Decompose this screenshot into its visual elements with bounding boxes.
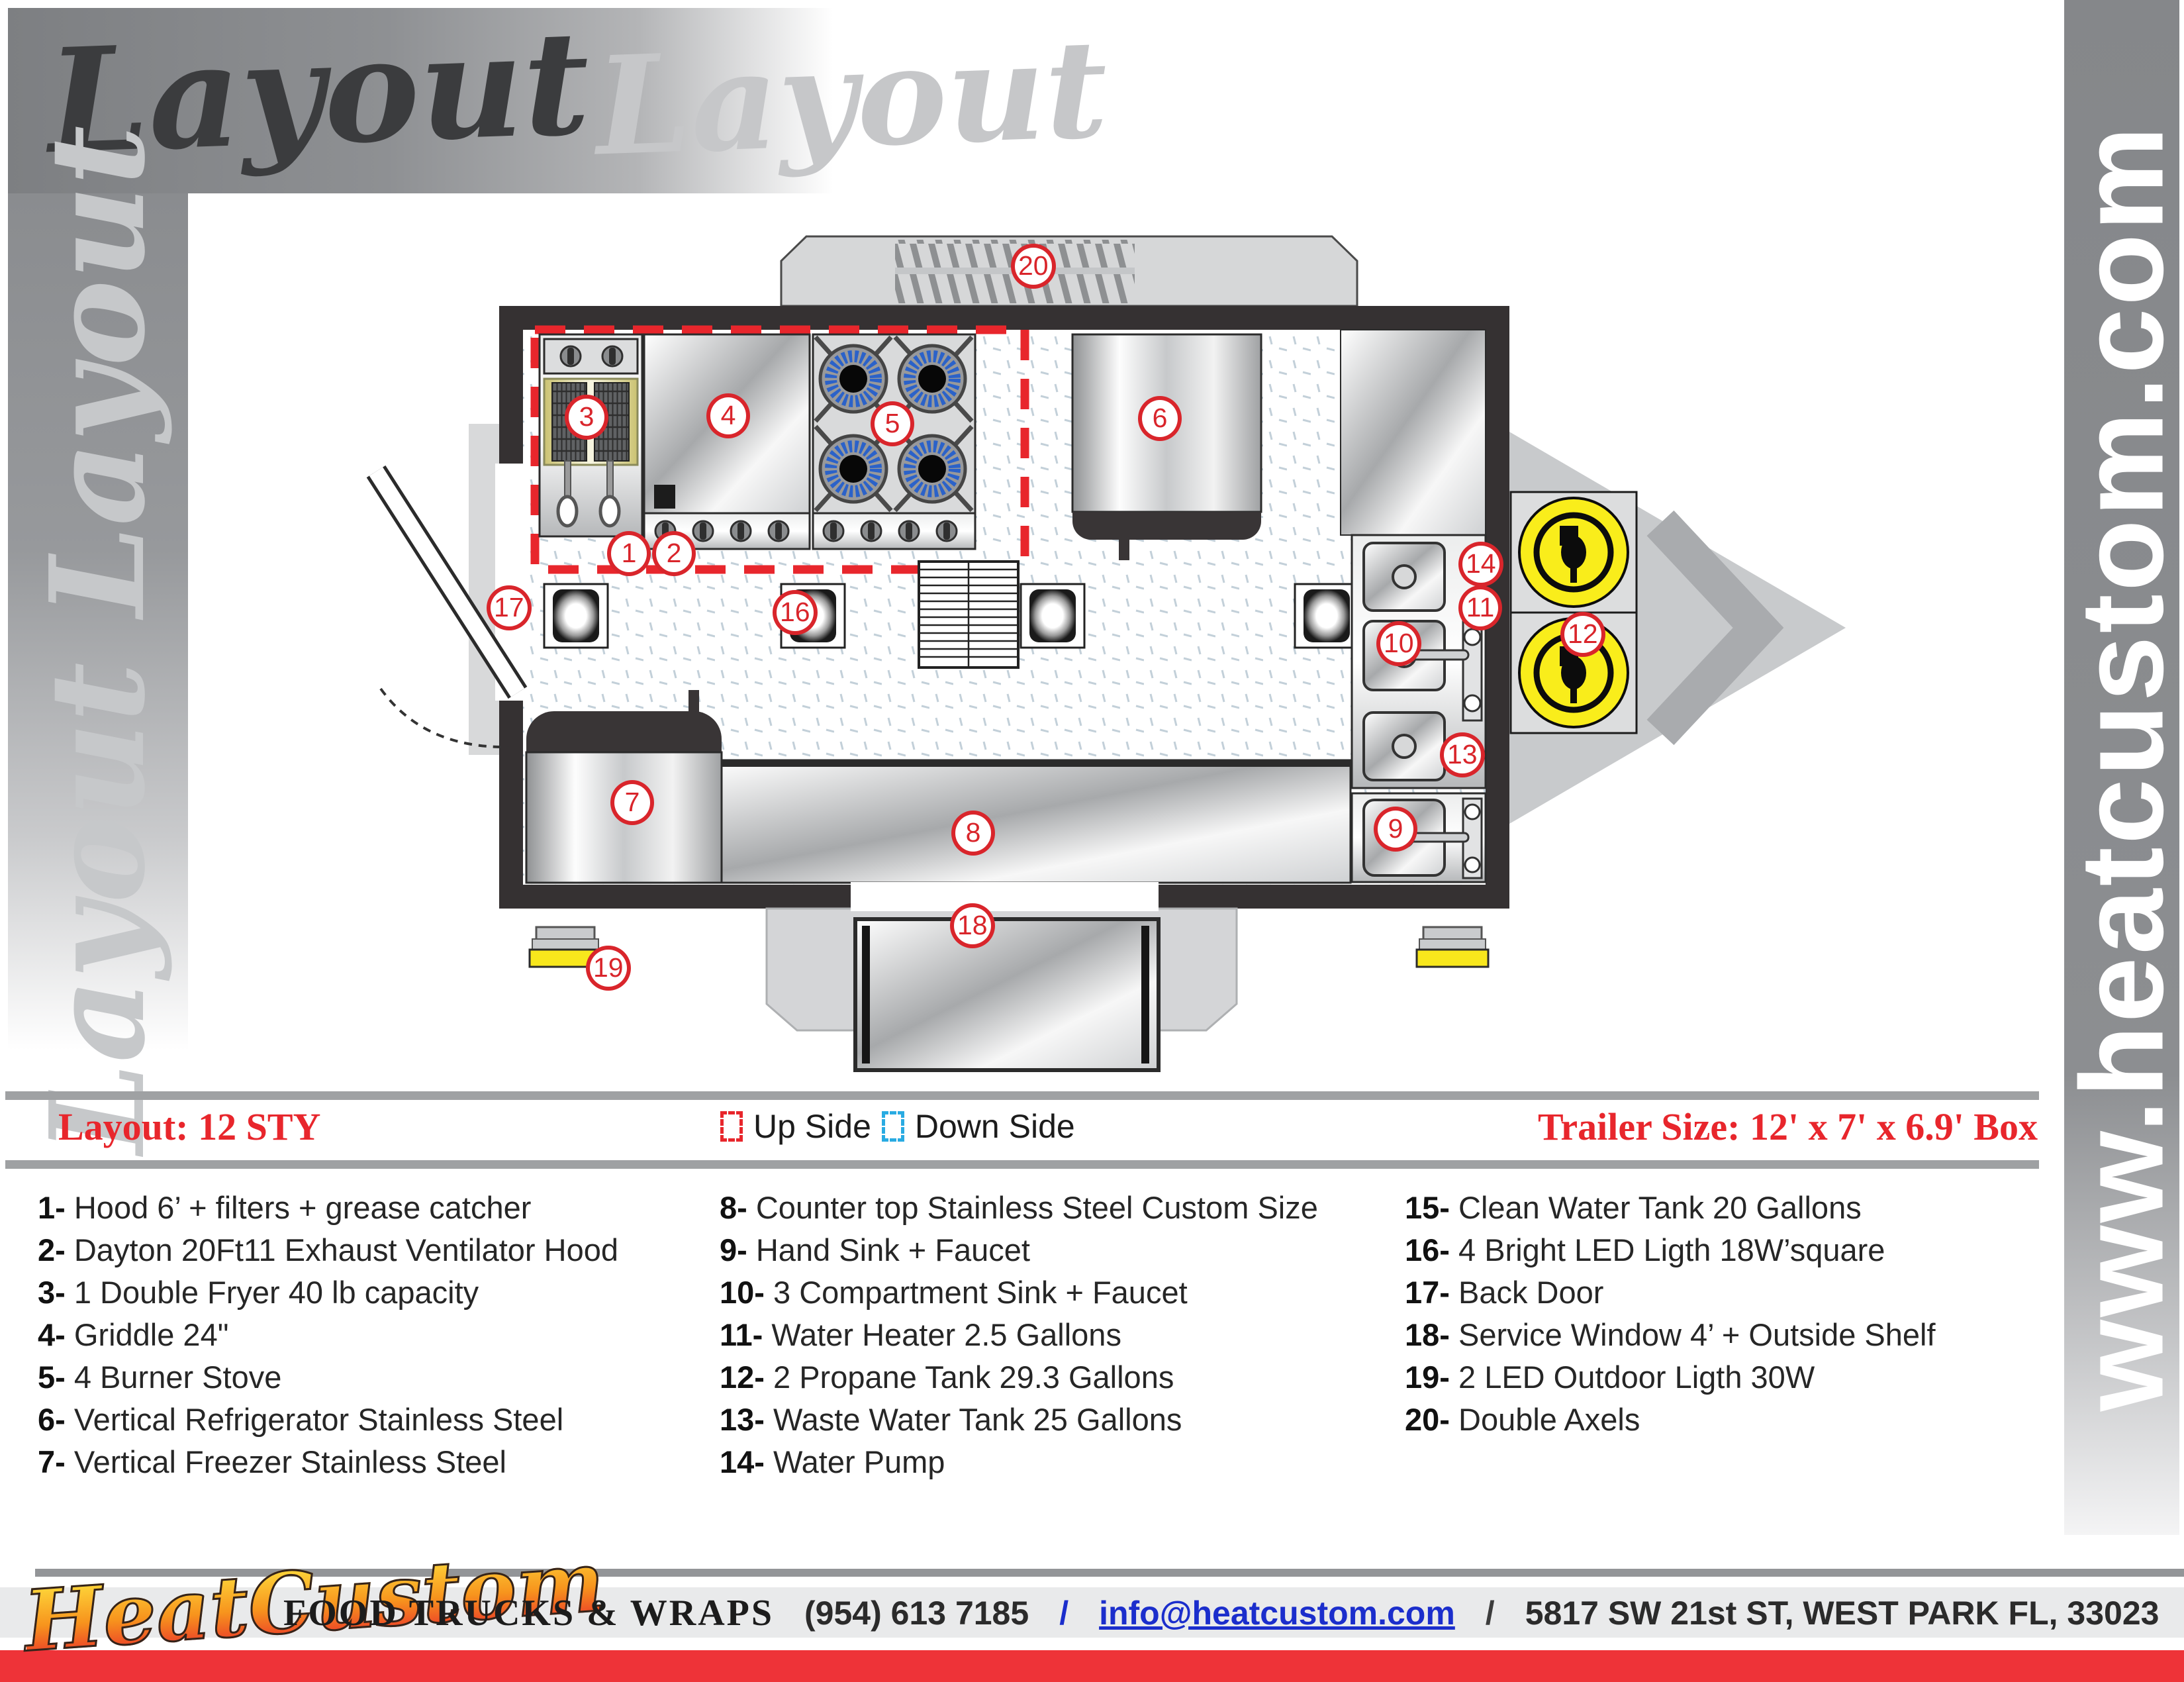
door-outside-shading [469, 424, 499, 755]
left-strip: Layout Layout [8, 193, 188, 1086]
list-item: 5- 4 Burner Stove [38, 1356, 618, 1399]
layout-label: Layout: 12 STY [58, 1105, 320, 1149]
faucet-spout [1410, 833, 1468, 842]
footer-red-bar [0, 1650, 2184, 1682]
propane-tank-1 [1511, 492, 1637, 613]
double-axels [781, 236, 1357, 306]
badge-6: 6 [1138, 396, 1182, 441]
left-strip-text: Layout Layout [22, 125, 174, 1154]
footer-row: FOOD TRUCKS & WRAPS (954) 613 7185 / inf… [283, 1592, 2159, 1634]
down-side-label: Down Side [915, 1107, 1075, 1146]
list-item: 18- Service Window 4’ + Outside Shelf [1405, 1314, 1936, 1356]
list-item: 12- 2 Propane Tank 29.3 Gallons [720, 1356, 1318, 1399]
up-side-label: Up Side [753, 1107, 871, 1146]
clean-water-tank-panel [1341, 330, 1486, 535]
badge-19: 19 [586, 946, 631, 991]
list-item: 3- 1 Double Fryer 40 lb capacity [38, 1271, 618, 1314]
badge-10: 10 [1376, 621, 1421, 666]
legend-key: Up Side Down Side [720, 1107, 1075, 1146]
legend-rule-bottom [5, 1160, 2039, 1169]
equipment-column-3: 15- Clean Water Tank 20 Gallons 16- 4 Br… [1405, 1187, 1936, 1441]
website-bar: www.heatcustom.com [2064, 0, 2179, 1535]
footer-separator-1: / [1059, 1594, 1068, 1632]
badge-12: 12 [1560, 612, 1605, 657]
list-item: 20- Double Axels [1405, 1399, 1936, 1441]
badge-18: 18 [950, 903, 995, 948]
list-item: 1- Hood 6’ + filters + grease catcher [38, 1187, 618, 1229]
footer-separator-2: / [1486, 1594, 1495, 1632]
hand-sink [1352, 793, 1486, 882]
badge-8: 8 [951, 811, 995, 856]
footer-tagline: FOOD TRUCKS & WRAPS [283, 1592, 774, 1634]
page-title-shadow: Layout [593, 10, 1110, 187]
legend-rule-top [5, 1091, 2039, 1100]
service-window [767, 882, 1237, 1070]
list-item: 19- 2 LED Outdoor Ligth 30W [1405, 1356, 1936, 1399]
trailer-size-label: Trailer Size: 12' x 7' x 6.9' Box [1538, 1105, 2038, 1149]
list-item: 11- Water Heater 2.5 Gallons [720, 1314, 1318, 1356]
list-item: 4- Griddle 24" [38, 1314, 618, 1356]
list-item: 16- 4 Bright LED Ligth 18W’square [1405, 1229, 1936, 1271]
equipment-column-1: 1- Hood 6’ + filters + grease catcher 2-… [38, 1187, 618, 1483]
griddle [644, 334, 810, 549]
refrigerator [1072, 334, 1261, 560]
list-item: 13- Waste Water Tank 25 Gallons [720, 1399, 1318, 1441]
badge-11: 11 [1458, 585, 1502, 630]
badge-2: 2 [652, 531, 696, 576]
badge-4: 4 [706, 393, 750, 438]
badge-13: 13 [1440, 732, 1485, 777]
equipment-column-2: 8- Counter top Stainless Steel Custom Si… [720, 1187, 1318, 1483]
list-item: 9- Hand Sink + Faucet [720, 1229, 1318, 1271]
list-item: 14- Water Pump [720, 1441, 1318, 1483]
badge-1: 1 [607, 531, 651, 576]
list-item: 15- Clean Water Tank 20 Gallons [1405, 1187, 1936, 1229]
badge-7: 7 [610, 780, 654, 825]
list-item: 17- Back Door [1405, 1271, 1936, 1314]
list-item: 7- Vertical Freezer Stainless Steel [38, 1441, 618, 1483]
down-side-icon [882, 1111, 904, 1142]
list-item: 8- Counter top Stainless Steel Custom Si… [720, 1187, 1318, 1229]
badge-20: 20 [1011, 244, 1056, 289]
badge-3: 3 [565, 395, 608, 440]
outdoor-light-right [1417, 927, 1488, 967]
footer-email-link[interactable]: info@heatcustom.com [1099, 1594, 1455, 1632]
footer-phone: (954) 613 7185 [804, 1594, 1029, 1632]
badge-14: 14 [1458, 542, 1503, 587]
counter-top [722, 760, 1351, 883]
list-item: 10- 3 Compartment Sink + Faucet [720, 1271, 1318, 1314]
list-item: 6- Vertical Refrigerator Stainless Steel [38, 1399, 618, 1441]
badge-16: 16 [773, 590, 818, 635]
up-side-icon [720, 1111, 743, 1142]
website-url: www.heatcustom.com [2054, 124, 2184, 1412]
badge-5: 5 [871, 401, 914, 446]
list-item: 2- Dayton 20Ft11 Exhaust Ventilator Hood [38, 1229, 618, 1271]
badge-17: 17 [487, 585, 532, 630]
floor-grate [919, 562, 1018, 668]
badge-9: 9 [1374, 807, 1417, 852]
footer-address: 5817 SW 21st ST, WEST PARK FL, 33023 [1525, 1594, 2160, 1632]
